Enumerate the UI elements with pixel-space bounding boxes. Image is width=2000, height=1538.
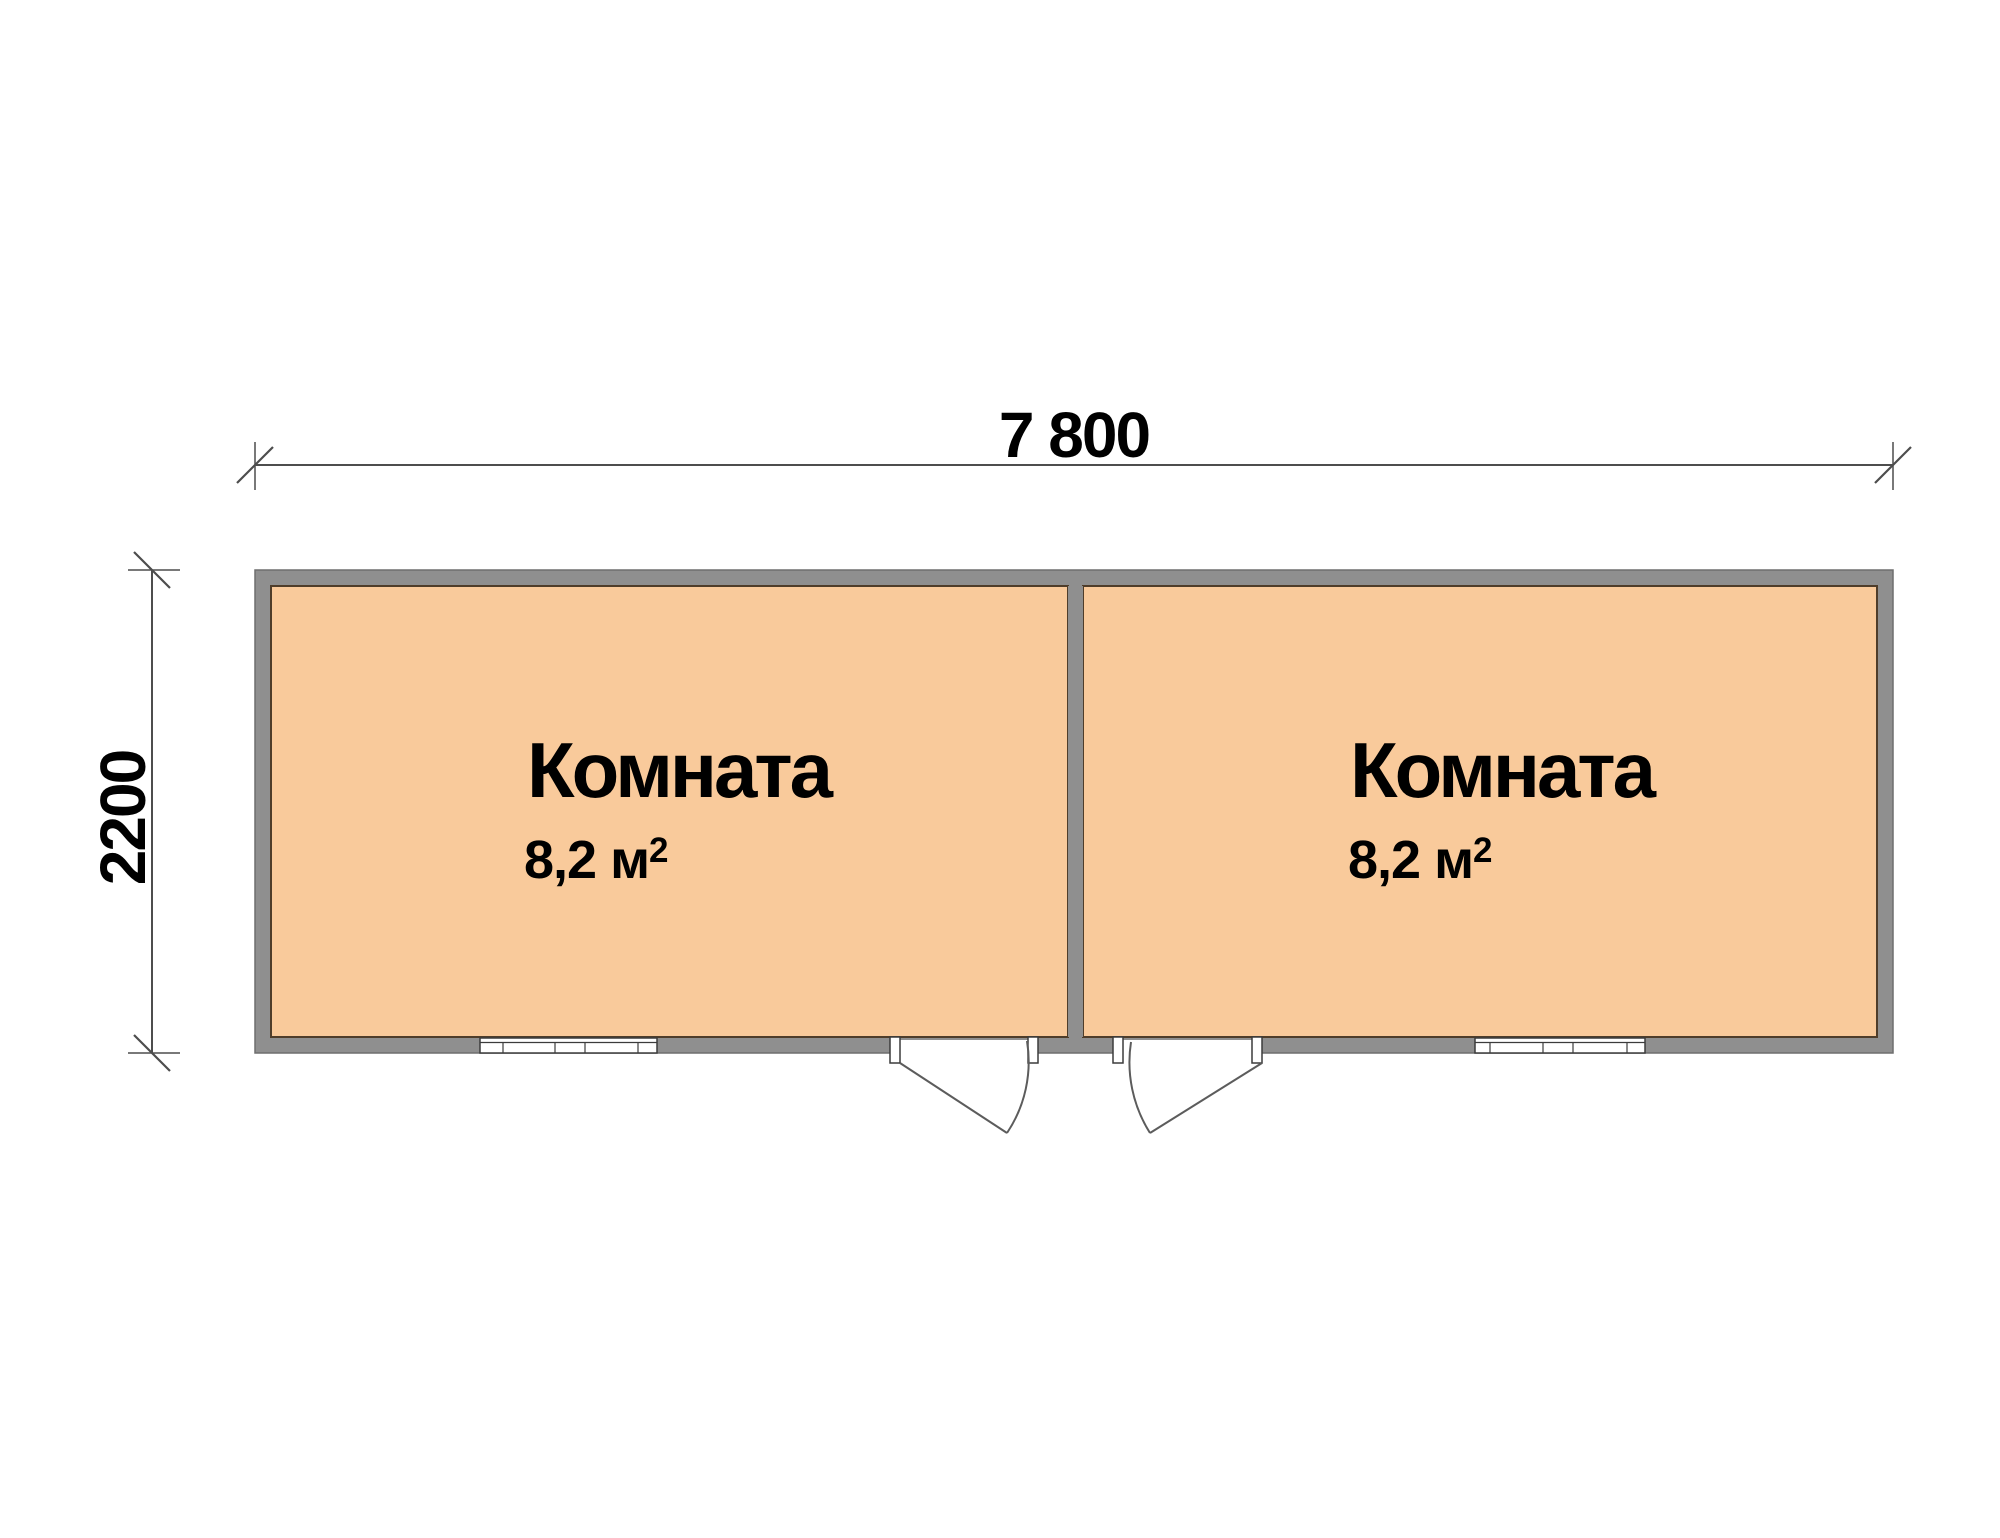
room-left-area: 8,2 м2 [524,830,668,890]
dimension-height-label: 2200 [87,751,159,885]
room-right-area-superscript: 2 [1473,831,1492,870]
window-left-frame-icon [480,1038,657,1053]
door-right-jamb-hinge [1252,1037,1262,1063]
window-right-frame-icon [1475,1038,1645,1053]
door-right-jamb-latch [1113,1037,1123,1063]
floor-plan-drawing: 7 800 2200 Комната 8,2 м2 Комната 8,2 м2 [0,0,2000,1538]
door-right-leaf [1150,1063,1262,1133]
room-right-area: 8,2 м2 [1348,830,1492,890]
door-opening-right [1113,1040,1262,1057]
door-left-leaf [900,1063,1007,1133]
dimension-width: 7 800 [237,399,1911,490]
partition-wall [1068,586,1083,1037]
room-left-area-superscript: 2 [649,831,668,870]
window-left [480,1038,657,1053]
floor-plan-page: 7 800 2200 Комната 8,2 м2 Комната 8,2 м2 [0,0,2000,1538]
door-opening-left [890,1040,1038,1057]
room-right-area-value: 8,2 м [1348,830,1473,890]
window-right [1475,1038,1645,1053]
dimension-height: 2200 [87,552,180,1071]
room-left-area-value: 8,2 м [524,830,649,890]
door-left-jamb-hinge [890,1037,900,1063]
dimension-width-label: 7 800 [999,399,1149,471]
room-left-name: Комната [527,726,834,814]
room-right-name: Комната [1350,726,1657,814]
